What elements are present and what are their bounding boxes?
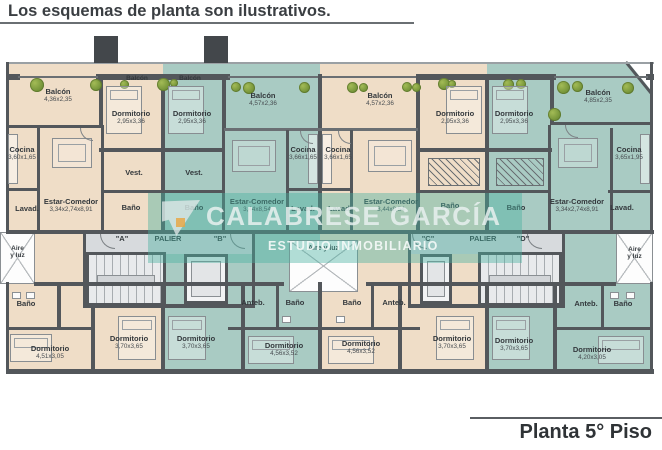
room-label-a-dorm3: Dormitorio3,70x3,65 bbox=[110, 335, 148, 350]
wall bbox=[562, 232, 565, 308]
wall bbox=[18, 76, 98, 78]
core-label-unit-a: "A" bbox=[116, 235, 129, 243]
room-label-b-banio-mid: Baño bbox=[185, 204, 204, 212]
room-label-a-banio-bottom: Baño bbox=[17, 300, 36, 308]
wall bbox=[165, 190, 225, 193]
bathroom-fixture bbox=[26, 292, 35, 299]
wall bbox=[485, 282, 489, 374]
tree-icon bbox=[30, 78, 44, 92]
wall bbox=[320, 327, 420, 330]
room-label-d-banio-bottom: Baño bbox=[614, 300, 633, 308]
plan-footer-title: Planta 5° Piso bbox=[520, 421, 653, 444]
light-well-left-label: Aire y luz bbox=[1, 245, 34, 260]
wall bbox=[94, 36, 118, 63]
wall bbox=[83, 232, 86, 308]
room-label-b-anteb: Anteb. bbox=[241, 299, 264, 307]
room-label-a-dorm1: Dormitorio2,95x3,36 bbox=[112, 110, 150, 125]
title-underline bbox=[0, 22, 414, 24]
room-label-a-estar: Estar-Comedor3,34x2,74x8,91 bbox=[44, 198, 98, 213]
footer-rule bbox=[470, 417, 662, 419]
wall bbox=[204, 36, 228, 63]
room-label-a-vest: Vest. bbox=[125, 169, 143, 177]
room-label-c-dorm3: Dormitorio3,70x3,65 bbox=[433, 335, 471, 350]
room-label-b-estar: Estar-Comedor3,44x8,54 bbox=[230, 198, 284, 213]
wall bbox=[487, 190, 550, 193]
room-label-b-balcon-small: Balcón bbox=[179, 75, 201, 82]
room-label-c-balcon: Balcón4,57x2,36 bbox=[366, 92, 394, 107]
staircase-left bbox=[86, 252, 166, 306]
wall bbox=[222, 76, 226, 130]
core-label-unit-d: "D" bbox=[517, 235, 530, 243]
wall bbox=[548, 125, 551, 234]
wall bbox=[555, 327, 653, 330]
wall bbox=[163, 148, 225, 152]
room-label-c-dorm2: Dormitorio4,56x3,52 bbox=[342, 340, 380, 355]
bathroom-fixture bbox=[626, 292, 635, 299]
room-label-d-estar: Estar-Comedor3,34x2,74x8,91 bbox=[550, 198, 604, 213]
page-title: Los esquemas de planta son ilustrativos. bbox=[8, 2, 331, 21]
wall bbox=[420, 148, 487, 152]
light-well-right-label: Aire y luz bbox=[617, 246, 652, 261]
wall bbox=[6, 188, 40, 191]
sofa-furniture bbox=[558, 138, 598, 168]
room-label-b-lavad: Lavad. bbox=[291, 205, 315, 213]
wardrobe-hatch bbox=[496, 158, 544, 186]
wall bbox=[485, 74, 489, 234]
room-label-c-banio-mid: Baño bbox=[441, 202, 460, 210]
sofa-furniture bbox=[368, 140, 412, 172]
room-label-b-dorm3: Dormitorio4,56x3,52 bbox=[265, 342, 303, 357]
room-label-c-cocina: Cocina3,66x1,65 bbox=[324, 146, 352, 161]
light-well-center-label: Aire y luz bbox=[290, 245, 357, 253]
wardrobe-hatch bbox=[428, 158, 480, 186]
room-label-d-dorm2: Dormitorio3,70x3,65 bbox=[495, 337, 533, 352]
wall bbox=[610, 128, 613, 232]
wall bbox=[34, 282, 284, 286]
wall bbox=[601, 286, 604, 328]
room-label-d-balcon: Balcón4,85x2,35 bbox=[584, 89, 612, 104]
wall bbox=[6, 327, 94, 330]
wall bbox=[420, 190, 485, 193]
wall bbox=[366, 282, 616, 286]
wall bbox=[57, 284, 61, 330]
wall bbox=[161, 282, 165, 374]
room-label-d-anteb: Anteb. bbox=[574, 300, 597, 308]
light-well-left: Aire y luz bbox=[0, 232, 35, 284]
room-label-a-lavad: Lavad. bbox=[15, 205, 39, 213]
core-label-palier-left: PALIER bbox=[155, 235, 182, 243]
room-label-c-anteb: Anteb. bbox=[382, 299, 405, 307]
light-well-right: Aire y luz bbox=[616, 232, 653, 284]
tree-icon bbox=[622, 82, 634, 94]
tree-icon bbox=[557, 81, 570, 94]
core-label-palier-right: PALIER bbox=[470, 235, 497, 243]
wall bbox=[320, 128, 418, 131]
wall bbox=[408, 304, 565, 308]
wall bbox=[608, 190, 653, 193]
tree-icon bbox=[402, 82, 412, 92]
wall bbox=[99, 148, 163, 152]
tree-icon bbox=[231, 82, 241, 92]
room-label-c-banio-bottom: Baño bbox=[343, 299, 362, 307]
tree-icon bbox=[90, 79, 102, 91]
room-label-b-cocina: Cocina3,66x1,65 bbox=[289, 146, 317, 161]
tree-icon bbox=[299, 82, 310, 93]
wall bbox=[650, 62, 653, 234]
wall bbox=[222, 130, 225, 234]
room-label-c-estar: Estar-Comedor3,44x8,54 bbox=[364, 198, 418, 213]
wall bbox=[83, 304, 255, 308]
sofa-furniture bbox=[52, 138, 92, 168]
room-label-d-lavad: Lavad. bbox=[610, 204, 634, 212]
room-label-b-vest: Vest. bbox=[185, 169, 203, 177]
room-label-b-dorm2: Dormitorio3,70x3,65 bbox=[177, 335, 215, 350]
wall bbox=[554, 76, 648, 78]
tree-icon bbox=[548, 108, 561, 121]
page: Los esquemas de planta son ilustrativos.… bbox=[0, 0, 662, 450]
wall bbox=[252, 232, 255, 308]
wall bbox=[37, 128, 40, 232]
core-label-unit-b: "B" bbox=[214, 235, 227, 243]
wall bbox=[408, 232, 411, 308]
room-label-b-dorm1: Dormitorio2,95x3,36 bbox=[173, 110, 211, 125]
room-label-d-cocina: Cocina3,65x1,95 bbox=[615, 146, 643, 161]
wall bbox=[101, 125, 104, 234]
room-label-a-banio-mid: Baño bbox=[122, 204, 141, 212]
bathroom-fixture bbox=[610, 292, 619, 299]
room-label-a-balcon-small: Balcón bbox=[126, 75, 148, 82]
tree-icon bbox=[572, 81, 583, 92]
elevator-right bbox=[420, 254, 452, 304]
room-label-d-dorm1: Dormitorio2,95x3,36 bbox=[495, 110, 533, 125]
wall bbox=[487, 148, 552, 152]
tree-icon bbox=[412, 83, 421, 92]
room-label-c-lavad: Lavad. bbox=[328, 205, 352, 213]
tree-icon bbox=[347, 82, 358, 93]
room-label-a-cocina: Cocina3,60x1,65 bbox=[8, 146, 36, 161]
wall bbox=[320, 188, 352, 191]
room-label-d-dorm3: Dormitorio4,20x3,05 bbox=[573, 346, 611, 361]
room-label-a-dorm2: Dormitorio4,51x3,05 bbox=[31, 345, 69, 360]
wall bbox=[288, 188, 320, 191]
room-label-d-banio-mid: Baño bbox=[507, 204, 526, 212]
bathroom-fixture bbox=[282, 316, 291, 323]
wall bbox=[228, 327, 320, 330]
wall bbox=[91, 304, 95, 372]
sofa-furniture bbox=[232, 140, 276, 172]
wall bbox=[161, 74, 165, 234]
wall bbox=[103, 190, 163, 193]
bathroom-fixture bbox=[12, 292, 21, 299]
staircase-right bbox=[478, 252, 562, 306]
room-label-b-banio-bottom: Baño bbox=[286, 299, 305, 307]
bathroom-fixture bbox=[336, 316, 345, 323]
wall bbox=[228, 76, 418, 78]
wall bbox=[371, 286, 374, 328]
light-well-center: Aire y luz bbox=[289, 240, 358, 292]
elevator-left bbox=[184, 254, 228, 304]
core-label-unit-c: "C" bbox=[422, 235, 435, 243]
room-label-b-balcon: Balcón4,57x2,36 bbox=[249, 92, 277, 107]
floor-plan: Aire y luz Aire y luz Aire y luz Balcón4… bbox=[0, 28, 662, 420]
room-label-a-balcon: Balcón4,36x2,35 bbox=[44, 88, 72, 103]
wall bbox=[276, 286, 279, 328]
room-label-c-dorm1: Dormitorio2,95x3,36 bbox=[436, 110, 474, 125]
